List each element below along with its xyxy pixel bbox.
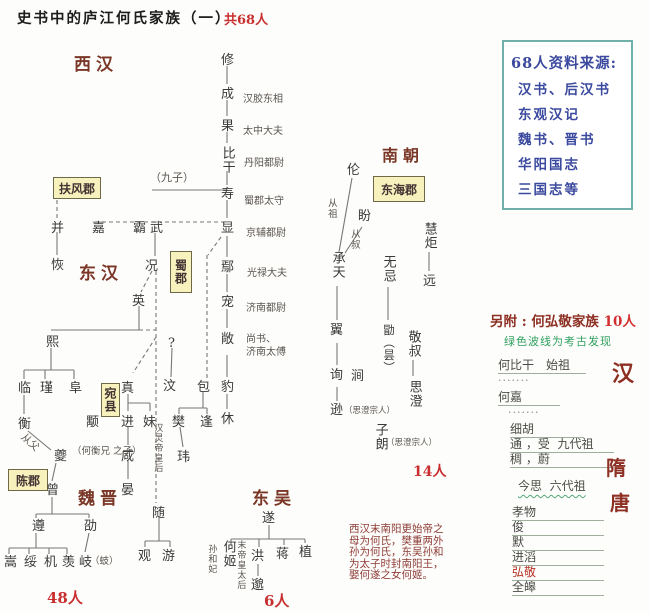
hongjing-header-text: 另附 : 何弘敬家族 bbox=[490, 314, 604, 330]
person-node: 休 bbox=[221, 413, 234, 427]
official-title: 蜀郡太守 bbox=[244, 192, 284, 207]
person-node: 逊 bbox=[330, 404, 343, 418]
annotation: （思澄宗人） bbox=[344, 407, 395, 417]
source-item: 魏书、晋书 bbox=[518, 128, 631, 148]
person-node: 夔 bbox=[54, 450, 67, 464]
person-node: 思澄 bbox=[407, 380, 421, 408]
person-node: 鄢 bbox=[221, 261, 234, 275]
note-line: 孙为何氏，东吴孙和 bbox=[349, 547, 445, 559]
person-node: 邈 bbox=[251, 579, 264, 593]
person-node: 颙 bbox=[86, 416, 99, 430]
connector bbox=[52, 463, 56, 481]
person-node: 无忌 bbox=[381, 255, 395, 283]
region-box: 宛县 bbox=[101, 383, 120, 417]
person-node: 洪 bbox=[251, 550, 264, 564]
annotation: 从祖 bbox=[325, 198, 336, 219]
source-item: 东观汉记 bbox=[518, 103, 631, 123]
person-node: 观 bbox=[138, 550, 151, 564]
annotation: （九子） bbox=[150, 172, 194, 185]
person-node: 恢 bbox=[51, 259, 64, 273]
annotation: （何衡兄 之子） bbox=[72, 447, 142, 458]
person-node: 衡 bbox=[18, 418, 31, 432]
person-node: 汶 bbox=[163, 380, 176, 394]
person-node: 翼 bbox=[330, 324, 343, 338]
hongjing-row: 全皞 bbox=[512, 578, 604, 596]
hongjing-legend: 绿色波线为考古发现 bbox=[504, 333, 648, 349]
region-box: 蜀郡 bbox=[170, 251, 192, 293]
count-badge: 14人 bbox=[413, 461, 446, 481]
person-node: 勖（昙） bbox=[383, 324, 395, 374]
official-title: 济南都尉 bbox=[246, 299, 286, 314]
person-node: 成 bbox=[221, 88, 234, 102]
person-node: 伦 bbox=[347, 164, 360, 178]
person-node: 嘉 bbox=[92, 222, 105, 236]
person-node: 遂 bbox=[262, 512, 275, 526]
person-node: 羡 bbox=[62, 556, 75, 570]
region-box: 陈郡 bbox=[8, 469, 48, 491]
person-node: 并 bbox=[51, 222, 64, 236]
person-node: 瑾 bbox=[40, 382, 53, 396]
person-node: 熙 bbox=[46, 336, 59, 350]
person-node: 武 bbox=[150, 222, 163, 236]
official-title: 汉胶东相 bbox=[243, 90, 283, 105]
hongjing-row: 何嘉 bbox=[498, 388, 560, 406]
person-node: 宠 bbox=[221, 296, 234, 310]
person-node: ? bbox=[168, 337, 175, 351]
person-node: 显 bbox=[221, 222, 234, 236]
person-node: 远 bbox=[423, 275, 436, 289]
official-title: 京辅都尉 bbox=[246, 224, 286, 239]
count-badge: 6人 bbox=[264, 590, 289, 611]
person-node: 况 bbox=[145, 260, 158, 274]
total-count-badge: 共68人 bbox=[224, 9, 268, 28]
sources-box: 68人资料来源: 汉书、后汉书东观汉记魏书、晋书华阳国志三国志等 bbox=[502, 40, 633, 210]
person-node: 遵 bbox=[32, 520, 45, 534]
person-node: 比干 bbox=[220, 146, 234, 174]
person-node: 承天 bbox=[330, 251, 344, 279]
annotation: 孙和妃 bbox=[206, 544, 216, 574]
person-node: 植 bbox=[299, 546, 312, 560]
person-node: 子朗 bbox=[373, 423, 387, 451]
person-node: 敞 bbox=[221, 333, 234, 347]
region-box: 扶风郡 bbox=[53, 177, 101, 199]
person-node: 机 bbox=[44, 556, 57, 570]
person-node: 询 bbox=[330, 369, 343, 383]
era-label: 魏晋 bbox=[78, 484, 122, 509]
person-node: 慧炬 bbox=[422, 222, 436, 250]
person-node: 敬叔 bbox=[406, 330, 420, 358]
note-line: 娶何遂之女何姬。 bbox=[349, 570, 445, 582]
person-node: 盼 bbox=[358, 210, 371, 224]
hongjing-era-mark: 汉 bbox=[612, 356, 634, 388]
hongjing-ellipsis: ······· bbox=[508, 406, 539, 419]
hongjing-era-mark: 隋 bbox=[606, 452, 626, 481]
annotation: 汉灵帝皇后 bbox=[152, 423, 162, 473]
annotation: （思澄宗人） bbox=[386, 439, 437, 449]
person-node: 劭 bbox=[84, 520, 97, 534]
hongjing-ellipsis: ······· bbox=[498, 374, 529, 387]
annotation: 从叔 bbox=[348, 229, 359, 250]
person-node: 包 bbox=[197, 381, 210, 395]
person-node: 修 bbox=[221, 54, 234, 68]
person-node: 果 bbox=[221, 120, 234, 134]
hongjing-count: 10人 bbox=[604, 314, 636, 330]
person-node: 霸 bbox=[133, 222, 146, 236]
person-node: 曾 bbox=[46, 484, 59, 498]
annotation: （蚑） bbox=[90, 557, 119, 568]
official-title: 太中大夫 bbox=[243, 122, 283, 137]
source-item: 汉书、后汉书 bbox=[518, 78, 631, 98]
person-node: 玮 bbox=[177, 451, 190, 465]
official-title: 济南太傅 bbox=[246, 343, 286, 358]
person-node: 豹 bbox=[221, 381, 234, 395]
person-node: 晏 bbox=[121, 484, 134, 498]
hongjing-panel: 另附 : 何弘敬家族 10人 绿色波线为考古发现 bbox=[490, 310, 648, 349]
person-node: 寿 bbox=[221, 188, 234, 202]
connector bbox=[85, 533, 89, 552]
person-node: 随 bbox=[152, 507, 165, 521]
hongjing-header: 另附 : 何弘敬家族 10人 bbox=[490, 310, 648, 330]
person-node: 嵩 bbox=[4, 556, 17, 570]
era-label: 西汉 bbox=[74, 50, 118, 75]
person-node: 蒋 bbox=[276, 548, 289, 562]
dashed-connector bbox=[133, 337, 156, 373]
person-node: 涧 bbox=[351, 370, 364, 384]
annotation: 末帝皇太后 bbox=[235, 540, 245, 590]
source-item: 华阳国志 bbox=[518, 153, 631, 173]
historical-note: 西汉末南阳更始帝之母为何氏，樊重两外孙为何氏，东吴孙和为太子时封南阳王，娶何遂之… bbox=[349, 524, 445, 582]
person-node: 英 bbox=[132, 295, 145, 309]
official-title: 丹阳都尉 bbox=[244, 154, 284, 169]
region-box: 东海郡 bbox=[373, 176, 425, 202]
official-title: 光禄大夫 bbox=[247, 264, 287, 279]
person-node: 游 bbox=[162, 550, 175, 564]
person-node: 真 bbox=[121, 382, 134, 396]
hongjing-era-mark: 唐 bbox=[610, 487, 630, 516]
sources-list: 汉书、后汉书东观汉记魏书、晋书华阳国志三国志等 bbox=[504, 78, 631, 198]
note-line: 西汉末南阳更始帝之 bbox=[349, 524, 445, 536]
person-node: 逢 bbox=[200, 416, 213, 430]
connector bbox=[180, 427, 183, 447]
person-node: 临 bbox=[18, 382, 31, 396]
era-label: 东吴 bbox=[252, 484, 296, 509]
era-label: 东汉 bbox=[79, 259, 123, 284]
connector bbox=[171, 348, 172, 377]
person-node: 何姬 bbox=[221, 540, 235, 568]
hongjing-row: 今思 六代祖 bbox=[518, 477, 616, 494]
dashed-connector bbox=[141, 271, 152, 292]
count-badge: 48人 bbox=[47, 587, 83, 608]
dashed-connector bbox=[208, 237, 221, 255]
person-node: 绥 bbox=[24, 556, 37, 570]
hongjing-row: 稠 ，蔚 bbox=[510, 450, 614, 468]
person-node: 阜 bbox=[69, 382, 82, 396]
person-node: 进 bbox=[121, 416, 134, 430]
source-item: 三国志等 bbox=[518, 178, 631, 198]
person-node: 樊 bbox=[172, 416, 185, 430]
genealogy-diagram: 史书中的庐江何氏家族（一） 共68人 68人资料来源: 汉书、后汉书东观汉记魏书… bbox=[0, 0, 650, 613]
era-label: 南朝 bbox=[382, 142, 424, 166]
hongjing-row: 何比干 始祖 bbox=[498, 356, 586, 374]
sources-title: 68人资料来源: bbox=[511, 52, 627, 73]
page-title: 史书中的庐江何氏家族（一） bbox=[17, 7, 232, 28]
